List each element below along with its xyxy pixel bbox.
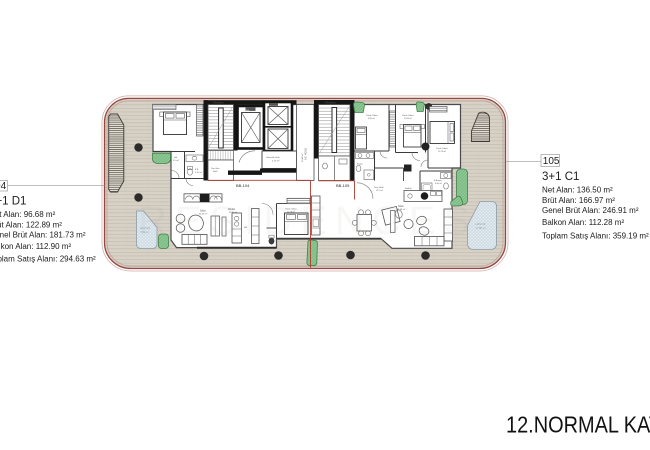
svg-text:E.B.: E.B. xyxy=(195,169,199,171)
svg-text:3.5 m²: 3.5 m² xyxy=(173,159,179,162)
svg-text:E.Banyo: E.Banyo xyxy=(434,180,442,182)
svg-text:RESIDENCES: RESIDENCES xyxy=(138,199,478,243)
svg-text:Holü: Holü xyxy=(213,171,218,173)
svg-text:6.40 m²: 6.40 m² xyxy=(435,182,442,185)
svg-text:Y.Merdiven: Y.Merdiven xyxy=(212,101,224,104)
svg-text:Genel Brüt Alan: 181.73 m²: Genel Brüt Alan: 181.73 m² xyxy=(0,231,86,240)
svg-text:Yatak Odası: Yatak Odası xyxy=(366,114,378,117)
svg-text:AS. HOLÜ: AS. HOLÜ xyxy=(304,148,308,160)
svg-text:4.10 m²: 4.10 m² xyxy=(195,171,202,174)
svg-text:Genel Brüt Alan: 246.91 m²: Genel Brüt Alan: 246.91 m² xyxy=(542,206,639,215)
svg-text:AS.: AS. xyxy=(246,109,250,112)
svg-text:5.13 m²: 5.13 m² xyxy=(272,160,280,163)
svg-text:Banyo: Banyo xyxy=(357,164,364,166)
svg-text:Balkon Alan: 112.28 m²: Balkon Alan: 112.28 m² xyxy=(542,218,624,227)
svg-text:104: 104 xyxy=(0,181,7,192)
svg-text:9.89 m²: 9.89 m² xyxy=(368,117,375,120)
svg-text:Brüt Alan: 166.97 m²: Brüt Alan: 166.97 m² xyxy=(542,196,615,205)
svg-text:BB-104: BB-104 xyxy=(236,183,250,188)
svg-text:Giriş Holü: Giriş Holü xyxy=(374,186,384,189)
svg-text:Y.Merdiven: Y.Merdiven xyxy=(324,101,336,104)
svg-text:Yan.Güv.: Yan.Güv. xyxy=(211,168,220,170)
svg-text:Yatak Odası: Yatak Odası xyxy=(436,147,448,150)
svg-text:10.7 m²: 10.7 m² xyxy=(376,189,383,192)
svg-text:Yatak Odası: Yatak Odası xyxy=(402,114,414,117)
svg-text:3+1 C1: 3+1 C1 xyxy=(542,171,579,183)
svg-text:BB-105: BB-105 xyxy=(336,183,350,188)
svg-text:Balkon Alan: 112.90 m²: Balkon Alan: 112.90 m² xyxy=(0,242,71,251)
svg-text:Net Alan: 136.50 m²: Net Alan: 136.50 m² xyxy=(542,186,613,195)
svg-text:11.66 m²: 11.66 m² xyxy=(404,117,412,120)
svg-text:15.74 m²: 15.74 m² xyxy=(438,150,446,153)
svg-text:3+1 D1: 3+1 D1 xyxy=(0,196,26,208)
svg-text:10.48 m²: 10.48 m² xyxy=(301,153,304,162)
svg-text:105: 105 xyxy=(543,156,560,167)
svg-text:12.NORMAL KAT: 12.NORMAL KAT xyxy=(506,412,650,438)
svg-text:Net Alan: 96.68 m²: Net Alan: 96.68 m² xyxy=(0,210,56,219)
svg-text:Toplam Satış Alanı: 294.63 m²: Toplam Satış Alanı: 294.63 m² xyxy=(0,255,96,264)
svg-text:Güvenlik Holü: Güvenlik Holü xyxy=(266,157,280,159)
svg-text:Mutfak: Mutfak xyxy=(405,187,412,190)
svg-text:Toplam Satış Alanı: 359.19 m²: Toplam Satış Alanı: 359.19 m² xyxy=(542,232,649,241)
svg-text:Brüt Alan: 122.89 m²: Brüt Alan: 122.89 m² xyxy=(0,221,62,230)
